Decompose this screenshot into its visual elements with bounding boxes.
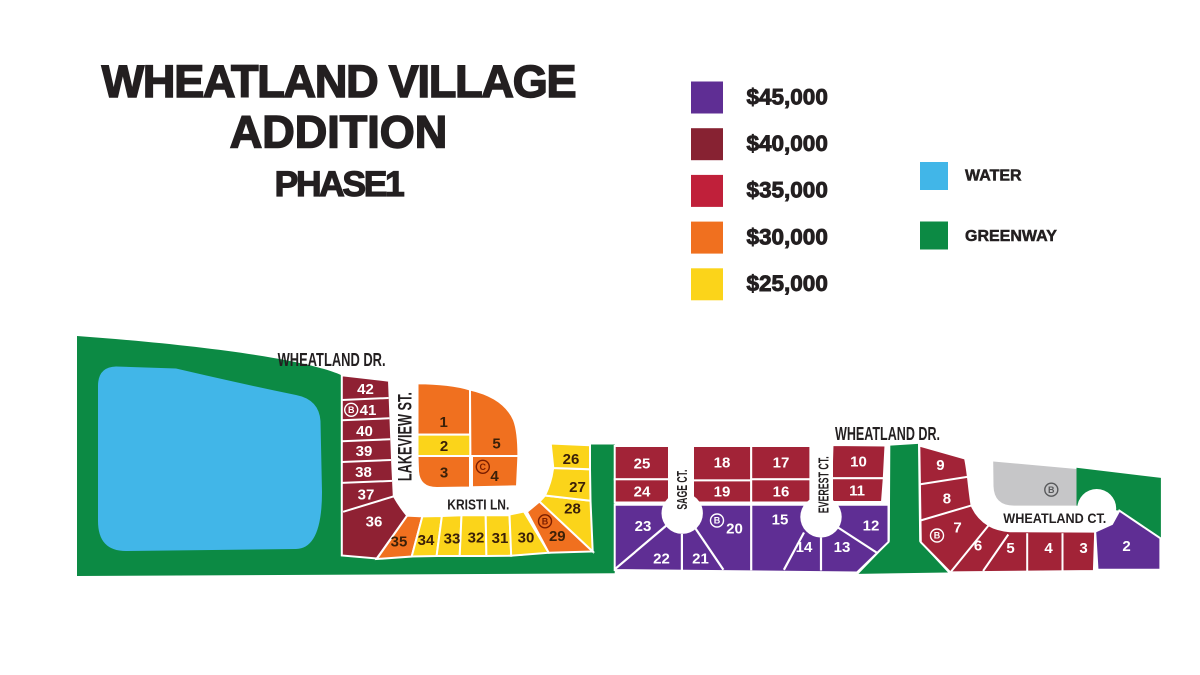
svg-text:38: 38 — [355, 464, 372, 481]
svg-text:WHEATLAND CT.: WHEATLAND CT. — [1003, 510, 1106, 526]
svg-text:11: 11 — [849, 483, 865, 500]
svg-text:9: 9 — [936, 457, 944, 474]
svg-text:27: 27 — [569, 479, 586, 496]
svg-text:33: 33 — [444, 531, 461, 548]
svg-text:PHASE1: PHASE1 — [275, 164, 404, 204]
svg-text:36: 36 — [366, 514, 383, 531]
svg-text:LAKEVIEW ST.: LAKEVIEW ST. — [396, 392, 417, 481]
svg-text:1: 1 — [440, 414, 448, 431]
svg-text:19: 19 — [714, 484, 731, 501]
svg-text:31: 31 — [492, 530, 509, 547]
svg-text:39: 39 — [356, 443, 373, 460]
svg-text:37: 37 — [358, 487, 375, 504]
svg-text:23: 23 — [635, 518, 652, 535]
svg-text:18: 18 — [714, 455, 731, 472]
svg-text:B: B — [714, 516, 721, 526]
svg-text:GREENWAY: GREENWAY — [965, 228, 1057, 245]
svg-text:29: 29 — [549, 528, 566, 545]
svg-text:ADDITION: ADDITION — [230, 107, 448, 158]
svg-text:EVEREST CT.: EVEREST CT. — [817, 456, 833, 513]
svg-text:35: 35 — [391, 534, 408, 551]
svg-text:14: 14 — [796, 539, 813, 556]
svg-text:WHEATLAND DR.: WHEATLAND DR. — [835, 423, 940, 444]
svg-text:$25,000: $25,000 — [747, 271, 828, 296]
svg-text:2: 2 — [440, 438, 448, 455]
svg-text:KRISTI LN.: KRISTI LN. — [447, 496, 509, 513]
svg-text:$35,000: $35,000 — [747, 178, 828, 203]
svg-text:8: 8 — [943, 491, 951, 508]
svg-text:WHEATLAND VILLAGE: WHEATLAND VILLAGE — [102, 56, 576, 107]
svg-text:26: 26 — [563, 451, 580, 468]
svg-text:$40,000: $40,000 — [747, 131, 828, 156]
svg-text:3: 3 — [440, 465, 448, 482]
svg-text:10: 10 — [850, 454, 867, 471]
svg-text:12: 12 — [863, 518, 880, 535]
svg-text:2: 2 — [1122, 538, 1130, 555]
svg-text:30: 30 — [518, 530, 535, 547]
svg-text:B: B — [542, 517, 549, 527]
svg-text:B: B — [1048, 485, 1055, 495]
svg-text:4: 4 — [490, 468, 499, 485]
svg-text:B: B — [934, 531, 941, 541]
svg-text:17: 17 — [773, 455, 790, 472]
svg-text:28: 28 — [564, 501, 581, 518]
svg-text:24: 24 — [634, 484, 651, 501]
svg-text:21: 21 — [692, 551, 709, 568]
svg-text:15: 15 — [772, 512, 789, 529]
svg-text:WHEATLAND DR.: WHEATLAND DR. — [278, 349, 386, 370]
svg-text:4: 4 — [1044, 540, 1053, 557]
svg-text:20: 20 — [726, 521, 743, 538]
svg-text:$30,000: $30,000 — [747, 224, 828, 249]
svg-text:WATER: WATER — [965, 168, 1022, 185]
svg-text:22: 22 — [653, 551, 670, 568]
svg-text:7: 7 — [953, 520, 961, 537]
svg-text:13: 13 — [834, 539, 851, 556]
svg-text:32: 32 — [468, 530, 485, 547]
svg-text:SAGE CT.: SAGE CT. — [675, 470, 691, 510]
svg-text:B: B — [348, 405, 355, 415]
svg-text:3: 3 — [1079, 540, 1087, 557]
svg-text:16: 16 — [773, 484, 790, 501]
svg-text:5: 5 — [492, 436, 500, 453]
svg-text:25: 25 — [634, 456, 651, 473]
svg-text:5: 5 — [1006, 540, 1014, 557]
svg-text:$45,000: $45,000 — [747, 84, 828, 109]
svg-text:42: 42 — [357, 381, 374, 398]
svg-text:6: 6 — [974, 538, 982, 555]
svg-text:34: 34 — [418, 532, 435, 549]
svg-text:C: C — [480, 462, 487, 472]
svg-text:40: 40 — [356, 423, 373, 440]
svg-text:41: 41 — [360, 402, 377, 419]
